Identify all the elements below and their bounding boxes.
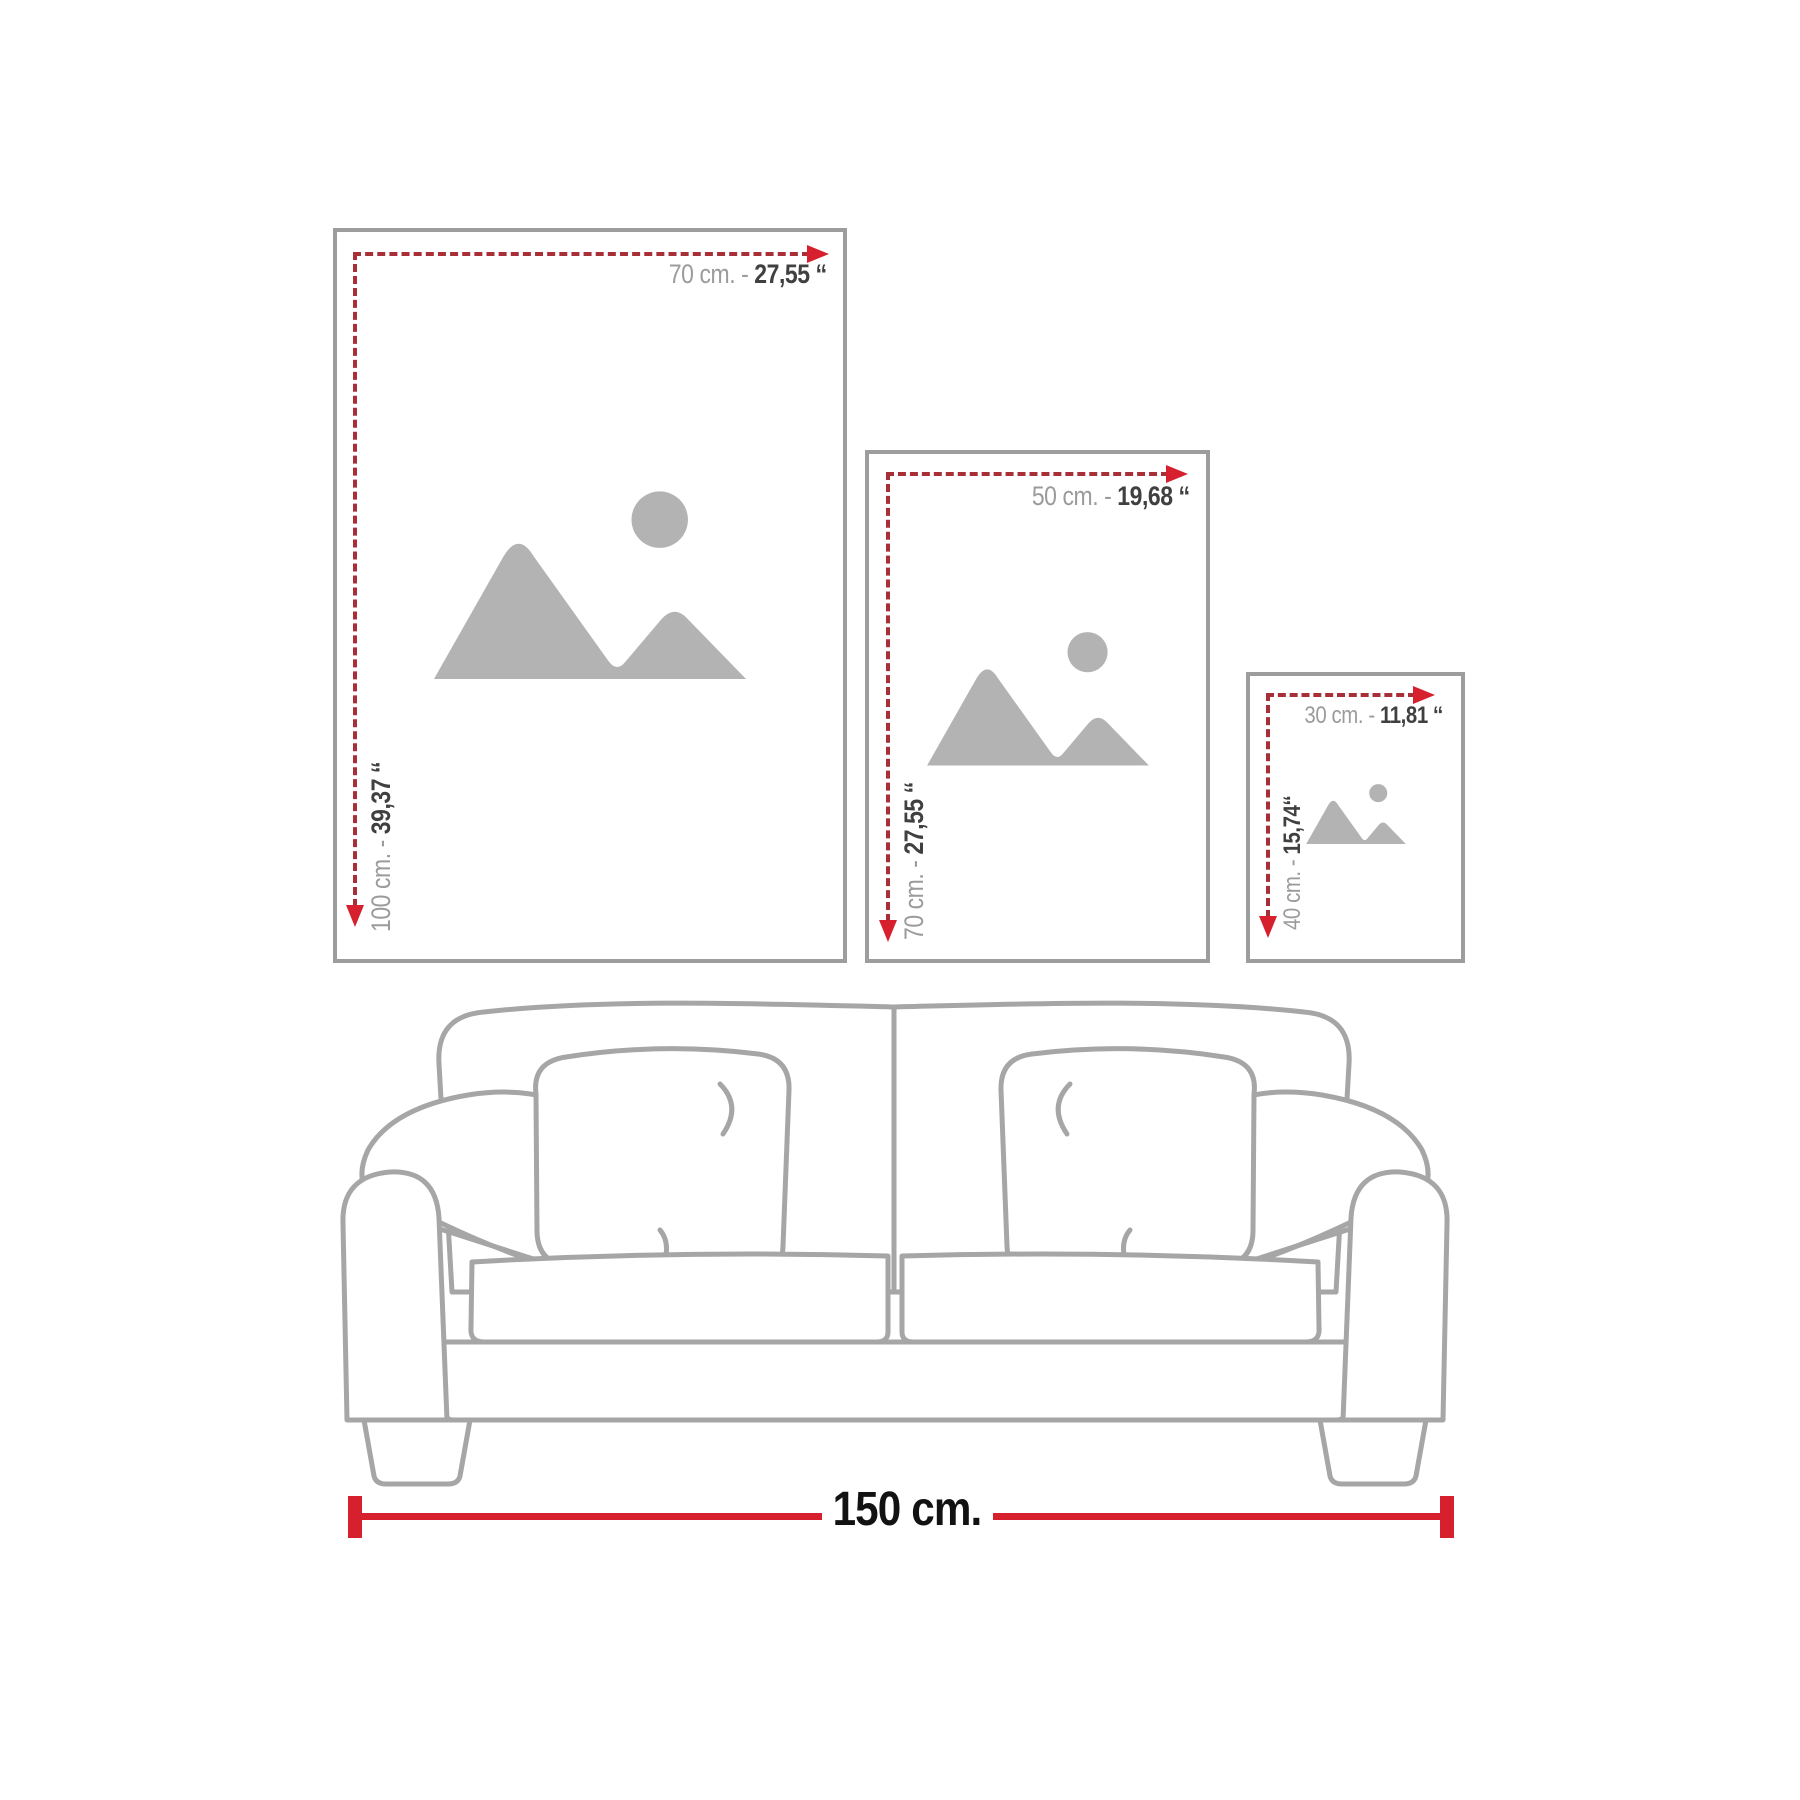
arrow-down-icon: [346, 905, 364, 927]
height-dimension-label: 70 cm. - 27,55 ‘‘: [900, 782, 930, 940]
width-dimension-label: 70 cm. - 27,55 ‘‘: [669, 260, 827, 290]
sofa-arm-left: [343, 1172, 447, 1420]
sofa-width-line-left: [362, 1513, 822, 1520]
dimension-end-cap-right: [1440, 1496, 1454, 1538]
height-cm-value: 100 cm. -: [366, 840, 396, 932]
width-inch-value: 19,68 ‘‘: [1118, 481, 1190, 511]
sofa-seat-left: [471, 1254, 888, 1342]
sofa-illustration: [340, 992, 1450, 1492]
image-placeholder-icon: [920, 612, 1156, 801]
poster-frame-medium: 50 cm. - 19,68 ‘‘ 70 cm. - 27,55 ‘‘: [865, 450, 1210, 963]
width-inch-value: 11,81 ‘‘: [1380, 702, 1443, 729]
width-dimension-line: [353, 252, 810, 256]
sofa-seat-right: [902, 1254, 1319, 1342]
height-inch-value: 15,74‘‘: [1279, 796, 1306, 855]
dimension-end-cap-left: [348, 1496, 362, 1538]
arrow-down-icon: [1259, 916, 1277, 938]
height-cm-value: 70 cm. -: [899, 860, 929, 940]
width-cm-value: 50 cm. -: [1032, 481, 1112, 511]
sofa-pillow-left-square: [536, 1049, 789, 1276]
height-cm-value: 40 cm. -: [1279, 860, 1306, 930]
poster-frame-small: 30 cm. - 11,81 ‘‘ 40 cm. - 15,74‘‘: [1246, 672, 1465, 963]
sofa-foot-left: [364, 1420, 470, 1484]
width-dimension-label: 50 cm. - 19,68 ‘‘: [1032, 482, 1190, 512]
size-guide-diagram: 70 cm. - 27,55 ‘‘ 100 cm. - 39,37 ‘‘ 50 …: [0, 0, 1800, 1800]
width-cm-value: 70 cm. -: [669, 259, 749, 289]
width-inch-value: 27,55 ‘‘: [755, 259, 827, 289]
height-inch-value: 39,37 ‘‘: [366, 762, 396, 834]
image-placeholder-icon: [424, 463, 756, 729]
height-inch-value: 27,55 ‘‘: [899, 782, 929, 854]
sofa-arm-right: [1343, 1172, 1447, 1420]
sofa-width-line-right: [993, 1513, 1440, 1520]
sofa-width-label: 150 cm.: [823, 1482, 990, 1537]
sofa-base: [444, 1342, 1346, 1420]
sofa-foot-right: [1320, 1420, 1426, 1484]
sofa-pillow-right-square: [1001, 1049, 1254, 1276]
width-cm-value: 30 cm. -: [1305, 702, 1375, 729]
width-dimension-line: [886, 472, 1169, 476]
height-dimension-label: 40 cm. - 15,74‘‘: [1280, 796, 1306, 930]
height-dimension-label: 100 cm. - 39,37 ‘‘: [367, 762, 397, 932]
width-dimension-line: [1266, 693, 1416, 697]
height-dimension-line: [1266, 693, 1270, 918]
image-placeholder-icon: [1303, 775, 1409, 860]
width-dimension-label: 30 cm. - 11,81 ‘‘: [1305, 703, 1443, 729]
poster-frame-large: 70 cm. - 27,55 ‘‘ 100 cm. - 39,37 ‘‘: [333, 228, 847, 963]
arrow-down-icon: [879, 920, 897, 942]
height-dimension-line: [353, 252, 357, 907]
height-dimension-line: [886, 472, 890, 922]
